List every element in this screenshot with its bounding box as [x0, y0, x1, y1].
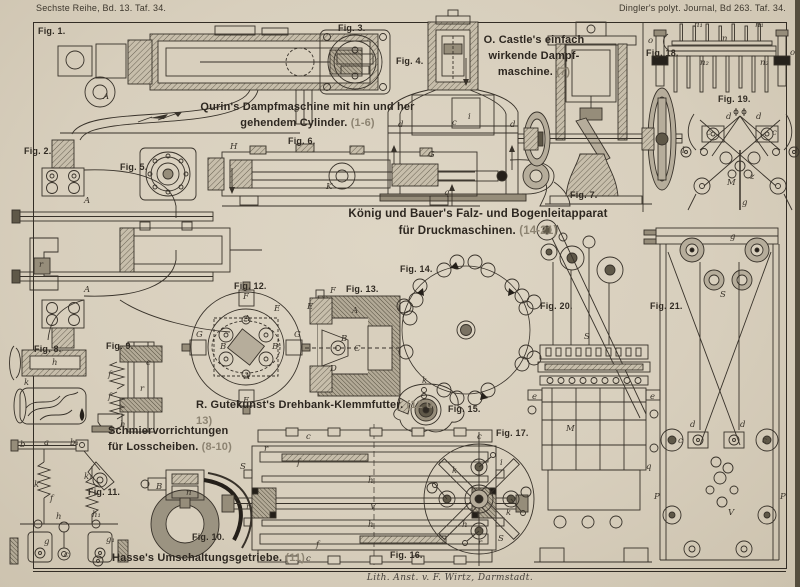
fig-label-5: Fig. 5.	[120, 162, 147, 172]
caption-hasse: Hasse's Umschaltungsgetriebe. (11)	[112, 551, 342, 567]
figure-9-drawing	[92, 342, 162, 432]
caption-schmier-line1: Schmiervorrichtungen	[108, 425, 228, 437]
figure-10-drawing	[141, 470, 251, 558]
fig-label-9: Fig. 9.	[106, 341, 133, 351]
caption-koenig: König und Bauer's Falz- und Bogenleitapp…	[332, 206, 624, 239]
fig-label-14: Fig. 14.	[400, 264, 433, 274]
caption-castle: O. Castle's einfach wirkende Dampf- masc…	[476, 33, 592, 81]
caption-qurin: Qurin's Dampfmaschine mit hin und her ge…	[185, 100, 430, 132]
figure-12-drawing	[182, 282, 310, 414]
caption-schmier-ref: (8-10)	[202, 441, 232, 453]
fig-label-4: Fig. 4.	[396, 56, 423, 66]
fig-label-12: Fig. 12.	[234, 281, 267, 291]
caption-qurin-line1: Qurin's Dampfmaschine mit hin und her	[200, 101, 414, 113]
caption-schmier: Schmiervorrichtungen für Losscheiben. (8…	[108, 424, 268, 456]
fig-label-8: Fig. 8.	[34, 344, 61, 354]
fig-label-18: Fig. 18.	[646, 48, 679, 58]
figure-5-drawing	[140, 148, 196, 200]
fig-label-16: Fig. 16.	[390, 550, 423, 560]
fig-label-7: Fig. 7.	[570, 190, 597, 200]
figure-18-drawing	[652, 24, 790, 92]
caption-castle-line2: wirkende Dampf-	[489, 50, 580, 62]
caption-hasse-ref: (11)	[285, 552, 305, 564]
fig-label-11: Fig. 11.	[88, 487, 120, 497]
caption-gutekunst-text: R. Gutekunst's Drehbank-Klemmfutter.	[196, 399, 403, 411]
fig-label-1: Fig. 1.	[38, 26, 65, 36]
caption-qurin-line2: gehendem Cylinder.	[240, 117, 347, 129]
caption-castle-ref: (7)	[556, 66, 570, 78]
caption-koenig-line1: König und Bauer's Falz- und Bogenleitapp…	[348, 208, 607, 220]
figure-11-drawing	[10, 440, 128, 566]
plate-page: Sechste Reihe, Bd. 13. Taf. 34. Dingler'…	[0, 0, 800, 587]
fig-label-10: Fig. 10.	[192, 532, 225, 542]
fig-label-17: Fig. 17.	[496, 428, 529, 438]
figure-8-drawing	[10, 346, 87, 424]
caption-koenig-ref: (14-21)	[519, 225, 557, 237]
caption-schmier-line2: für Losscheiben.	[108, 441, 198, 453]
fig-label-21: Fig. 21.	[650, 301, 683, 311]
figure-14-drawing	[397, 255, 541, 405]
caption-castle-line1: O. Castle's einfach	[484, 34, 585, 46]
fig-label-20: Fig. 20.	[540, 301, 573, 311]
caption-qurin-ref: (1-6)	[351, 117, 375, 129]
fig-label-3: Fig. 3.	[338, 23, 365, 33]
fig-label-2: Fig. 2.	[24, 146, 51, 156]
plate-figures	[0, 0, 800, 587]
lithographer-imprint: Lith. Anst. v. F. Wirtz, Darmstadt.	[330, 573, 570, 583]
figure-19-drawing	[681, 108, 799, 210]
figure-13-drawing	[305, 290, 400, 396]
caption-hasse-text: Hasse's Umschaltungsgetriebe.	[112, 552, 282, 564]
figure-20-drawing	[528, 220, 660, 562]
caption-castle-line3: maschine.	[498, 66, 553, 78]
fig-label-13: Fig. 13.	[346, 284, 379, 294]
fig-label-15: Fig. 15.	[448, 404, 481, 414]
fig-label-6: Fig. 6.	[288, 136, 315, 146]
fig-label-19: Fig. 19.	[718, 94, 751, 104]
caption-koenig-line2: für Druckmaschinen.	[399, 225, 516, 237]
figure-21-drawing	[644, 228, 779, 560]
